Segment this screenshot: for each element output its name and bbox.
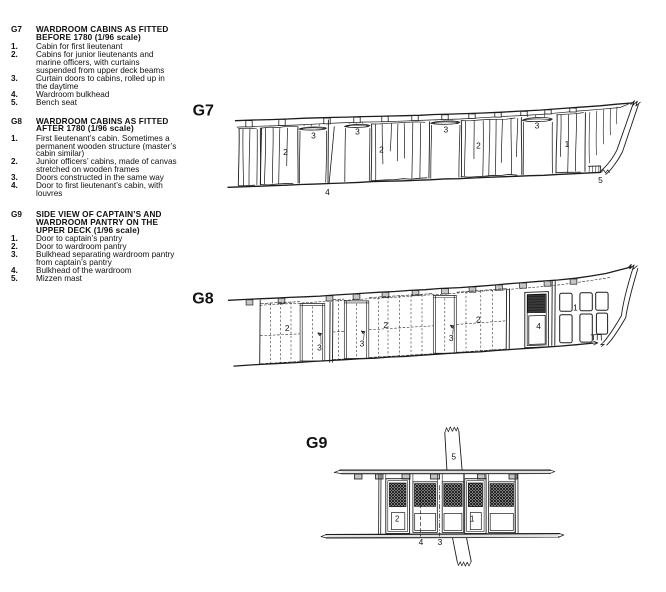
svg-text:G9: G9 bbox=[306, 435, 327, 452]
svg-text:3: 3 bbox=[317, 342, 322, 352]
svg-text:1: 1 bbox=[573, 302, 578, 312]
svg-text:3: 3 bbox=[355, 127, 360, 137]
svg-text:1: 1 bbox=[565, 139, 570, 149]
svg-text:3: 3 bbox=[443, 125, 448, 135]
svg-text:2: 2 bbox=[285, 323, 290, 333]
svg-text:1: 1 bbox=[470, 514, 474, 523]
svg-text:3: 3 bbox=[449, 333, 454, 343]
svg-text:G8: G8 bbox=[192, 290, 213, 307]
svg-text:2: 2 bbox=[476, 140, 481, 150]
svg-text:2: 2 bbox=[379, 144, 384, 154]
svg-text:3: 3 bbox=[311, 131, 316, 141]
svg-text:G7: G7 bbox=[193, 102, 214, 119]
svg-text:3: 3 bbox=[360, 339, 365, 349]
svg-text:4: 4 bbox=[536, 321, 541, 331]
svg-text:5: 5 bbox=[451, 452, 456, 462]
svg-text:2: 2 bbox=[283, 147, 288, 157]
svg-text:4: 4 bbox=[419, 537, 424, 547]
svg-text:5: 5 bbox=[598, 175, 603, 185]
svg-text:4: 4 bbox=[325, 187, 330, 197]
svg-text:2: 2 bbox=[395, 514, 399, 523]
svg-text:3: 3 bbox=[438, 537, 443, 547]
svg-text:3: 3 bbox=[535, 120, 540, 130]
svg-text:2: 2 bbox=[476, 314, 481, 324]
svg-text:2: 2 bbox=[383, 320, 388, 330]
